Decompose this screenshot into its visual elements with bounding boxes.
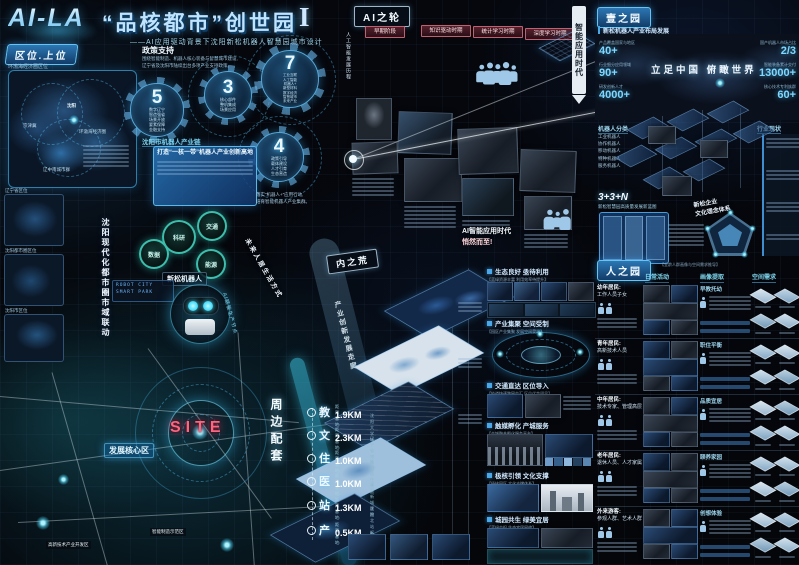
robot-class-list: 工业机器人 协作机器人 移动机器人 特种机器人 服务机器人 — [598, 133, 621, 169]
activity-photo — [671, 320, 698, 335]
robot-visor — [183, 297, 219, 315]
amenity-dist: 1.0KM — [335, 479, 362, 489]
persona-need: 早教托幼 — [700, 285, 722, 293]
space-iso-thumb — [750, 425, 777, 440]
analysis-photo — [568, 282, 594, 301]
micro-text-lines — [709, 462, 751, 480]
amenity-key: 医 — [319, 473, 330, 489]
activity-photo — [643, 397, 670, 415]
iso-caption — [779, 306, 795, 308]
space-iso-thumb — [774, 537, 799, 552]
map-node — [36, 516, 50, 530]
gear-items: 核心部件 整机集成 场景应用 — [220, 97, 236, 112]
ai-wheel-vertical-label: 人工智能发展历程 — [345, 32, 352, 124]
need-highlight — [700, 385, 750, 389]
analysis-thumb — [432, 534, 470, 560]
micro-text-lines — [83, 143, 129, 169]
timeline-origin-dot — [349, 155, 357, 163]
activity-photo-wide — [643, 415, 698, 432]
gear-items: 政策引导 载体建设 人才引育 生态营造 — [271, 156, 287, 176]
space-iso-thumb — [774, 400, 799, 415]
analysis-photo — [541, 282, 567, 301]
space-iso-thumb — [750, 537, 777, 552]
micro-text-lines — [597, 540, 637, 554]
core-zone-label: 发展核心区 — [104, 443, 154, 458]
persona-profile-icon — [700, 463, 708, 481]
analysis-photo — [514, 282, 540, 301]
surround-vertical-label: 周边配套 — [268, 398, 285, 508]
banner-line-1: ROBOT CITY — [116, 282, 170, 289]
timeline-photo — [462, 178, 514, 216]
micro-text-lines — [597, 316, 637, 330]
amenity-dot — [307, 501, 316, 510]
strip-tile — [560, 304, 594, 316]
pentagon-vertex — [712, 251, 719, 258]
need-highlight — [700, 433, 750, 437]
cube-guide-line — [740, 108, 741, 188]
iso-caption — [755, 474, 771, 476]
metro-circle-vertical-label: 沈阳现代化都市圈市域联动 — [100, 218, 111, 358]
iso-caption — [755, 500, 771, 502]
bohai-map: 沈阳 京津冀 环渤海经济圈 辽中南城市群 — [8, 70, 137, 188]
column-header-activities: 日常活动 — [645, 272, 669, 283]
ring-node — [576, 348, 584, 356]
micro-text-lines — [709, 518, 751, 536]
pentagon-vertex — [749, 225, 756, 232]
space-iso-thumb — [750, 481, 777, 496]
iso-caption — [779, 500, 795, 502]
activity-photo — [643, 509, 670, 527]
robot-eye-right — [203, 301, 213, 311]
amenity-dot — [307, 526, 316, 535]
analysis-header-ecology: 生态良好 亟待利用 【蓝绿资源丰富 利用效率待提升】 — [487, 266, 593, 283]
iso-caption — [779, 332, 795, 334]
amenity-dist: 1.3KM — [335, 503, 362, 513]
iso-caption — [755, 556, 771, 558]
activity-photo-wide — [643, 471, 698, 488]
space-iso-thumb — [750, 344, 777, 359]
need-highlight — [700, 553, 750, 557]
map-tiny-label-1: 高新技术产业开发区 — [46, 541, 91, 549]
garden-people-caption: 【全龄人群画像与空间需求推导】 — [660, 262, 720, 268]
blueprint-panel — [599, 212, 669, 264]
down-arrow-icon — [572, 95, 586, 104]
strategy-title: 触媒孵化 产城服务 — [495, 423, 549, 430]
stat-value: 60+ — [752, 89, 796, 101]
cube-photo-chip — [662, 176, 692, 196]
micro-text-lines — [709, 294, 751, 312]
amenity-key: 站 — [319, 497, 330, 513]
amenity-dist: 1.0KM — [335, 456, 362, 466]
industry-status-box — [762, 198, 799, 230]
blueprint-column — [603, 216, 622, 260]
persona-row: 外来游客: 参观人群、艺术人群 创想体验 — [595, 507, 799, 561]
landmark-spire — [550, 491, 556, 511]
policy-note-2: 培育智能机器人产业集群。 — [256, 199, 310, 205]
micro-text-lines — [458, 300, 482, 314]
persona-group: 青年居民: — [597, 339, 621, 347]
ring-diagram — [492, 332, 588, 376]
banner-line-2: SMART PARK — [116, 289, 170, 296]
need-highlight — [700, 545, 750, 549]
robot-eye-left — [188, 301, 198, 311]
poster-title: “品核都市”创世园 — [102, 7, 297, 37]
square-bullet-icon — [487, 383, 492, 388]
logo: AI-LA — [8, 4, 85, 33]
ring-core — [521, 346, 561, 364]
micro-text-lines — [709, 406, 751, 424]
blueprint-column — [625, 216, 644, 260]
section-title-ai-wheel: AI之轮 — [354, 6, 410, 27]
gear-3: 3 核心部件 整机集成 场景应用 — [198, 65, 258, 125]
amenity-dot — [307, 408, 316, 417]
amenity-dot — [307, 477, 316, 486]
timeline-portrait-photo — [356, 98, 392, 140]
industry-status-box — [762, 134, 799, 166]
micro-text-lines — [563, 394, 591, 412]
map-label-liaozhongnan: 辽中南城市群 — [43, 167, 70, 173]
industry-status-box — [762, 166, 799, 198]
gear-items: 数字辽宁 智造强省 场景开放 要素保障 金融支持 — [149, 107, 165, 132]
space-iso-thumb — [750, 400, 777, 415]
need-highlight — [700, 441, 750, 445]
strategy-title: 城园共生 绿美宜居 — [495, 517, 549, 524]
iso-caption — [755, 388, 771, 390]
space-iso-thumb — [774, 481, 799, 496]
strip-tile — [525, 304, 559, 316]
persona-sub: 工作人员子女 — [597, 291, 627, 298]
activity-photo — [643, 432, 670, 447]
ring-node — [536, 330, 544, 338]
analysis-photo — [525, 394, 561, 418]
analysis-thumb — [348, 534, 386, 560]
micro-text-lines — [668, 222, 704, 248]
strategy-title: 极核引领 文化支撑 — [495, 473, 549, 480]
activity-photo — [671, 509, 698, 527]
iso-caption — [779, 444, 795, 446]
persona-need: 品质宜居 — [700, 397, 722, 405]
bohai-map-caption: 环渤海经济圈区位 — [8, 63, 48, 70]
activity-photo — [671, 488, 698, 503]
space-iso-thumb — [774, 288, 799, 303]
micro-text-lines — [709, 350, 751, 368]
activity-photo — [643, 341, 670, 359]
need-highlight — [700, 489, 750, 493]
section-title-location: 区位.上位 — [5, 44, 79, 65]
era-vertical-banner: 智能应用时代 — [572, 6, 586, 94]
activity-photo — [671, 453, 698, 471]
shenyang-node — [69, 115, 79, 125]
persona-sub: 参观人群、艺术人群 — [597, 515, 642, 522]
activity-photo — [671, 285, 698, 303]
strip-tile — [489, 304, 523, 316]
persona-profile-icon — [700, 351, 708, 369]
amenity-key: 文 — [319, 427, 330, 443]
space-iso-thumb — [750, 456, 777, 471]
pentagon-vertex — [741, 251, 748, 258]
landmark-photo — [541, 484, 593, 512]
activity-photo-wide — [643, 303, 698, 320]
gear-number: 4 — [274, 137, 285, 156]
iso-caption — [779, 388, 795, 390]
pentagon-vertex — [704, 225, 711, 232]
micro-text-lines — [157, 161, 253, 175]
iso-caption — [755, 530, 771, 532]
landmark-spire — [578, 493, 584, 511]
robot-body — [185, 319, 215, 335]
square-bullet-icon — [487, 321, 492, 326]
stat-value: 4000+ — [599, 89, 630, 101]
legend-cell — [554, 458, 562, 466]
timeline-photo — [404, 158, 462, 202]
industry-panel: 打造“一核一带”机器人产业创新高地 — [153, 146, 257, 206]
legend-cell — [564, 458, 572, 466]
legend-cell — [545, 458, 553, 466]
persona-group: 中年居民: — [597, 395, 621, 403]
china-node — [715, 78, 725, 88]
gear-number: 5 — [152, 88, 163, 107]
activity-photo — [643, 285, 670, 303]
era-text-2: 悄然而至! — [462, 237, 492, 247]
analysis-title: 产业集聚 空间受制 — [495, 321, 549, 328]
activity-photo — [671, 432, 698, 447]
activity-photo-wide — [643, 359, 698, 376]
skyline-buildings — [488, 447, 542, 465]
strategy-photo — [541, 528, 593, 548]
stat-value: 2/3 — [752, 45, 796, 57]
need-highlight — [700, 497, 750, 501]
iso-caption — [755, 306, 771, 308]
strategy-plan-thumb — [487, 528, 539, 548]
iso-caption — [779, 474, 795, 476]
people-silhouettes — [546, 212, 570, 230]
legend-cell — [583, 458, 591, 466]
people-silhouettes — [478, 66, 518, 84]
iso-caption — [755, 332, 771, 334]
analysis-photo — [487, 394, 523, 418]
poster-canvas: AI-LA “品核都市”创世园 I ——AI应用驱动背景下沈阳新松机器人智慧园城… — [0, 0, 799, 565]
space-iso-thumb — [774, 344, 799, 359]
amenity-dist: 2.3KM — [335, 433, 362, 443]
space-iso-thumb — [774, 512, 799, 527]
stat-value: 13000+ — [752, 67, 796, 79]
persona-row: 幼年居民: 工作人员子女 早教托幼 — [595, 283, 799, 337]
timeline-stage-2: 知识驱动时期 — [421, 25, 471, 37]
need-highlight — [700, 329, 750, 333]
pentagon-vertex — [727, 209, 734, 216]
activity-photo — [671, 376, 698, 391]
iso-caption — [779, 556, 795, 558]
space-iso-thumb — [774, 425, 799, 440]
timeline-stage-1: 早期阶段 — [365, 26, 405, 38]
space-iso-thumb — [750, 313, 777, 328]
space-iso-thumb — [774, 456, 799, 471]
timeline-stage-3: 统计学习时期 — [473, 26, 523, 38]
persona-profile-icon — [700, 295, 708, 313]
culture-pentagon-chart — [706, 212, 754, 256]
space-iso-thumb — [750, 369, 777, 384]
persona-row: 青年居民: 高新技术人员 职住平衡 — [595, 339, 799, 393]
map-node — [58, 474, 69, 485]
gear-number: 3 — [223, 78, 234, 97]
panel-number: I — [299, 2, 310, 33]
activity-photo — [643, 453, 670, 471]
legend-cell — [573, 458, 581, 466]
formula-text: 3+3+N — [598, 192, 628, 203]
era-text-1: AI智能应用时代 — [462, 226, 511, 236]
analysis-title: 生态良好 亟待利用 — [495, 269, 549, 276]
section-title-garden-one: 壹之园 — [597, 7, 651, 28]
formula-note: 新松智慧园高质量发展新蓝图 — [598, 204, 657, 210]
micro-text-lines — [458, 412, 482, 426]
policy-title: 政策支持 — [142, 45, 174, 56]
persona-sub: 技术专家、管理高层 — [597, 403, 642, 410]
era-banner-text: 智能应用时代 — [574, 23, 585, 77]
industry-panel-title: 打造“一核一带”机器人产业创新高地 — [157, 150, 253, 158]
activity-photo — [643, 376, 670, 391]
map-label-bohai-circle: 环渤海经济圈 — [79, 129, 106, 135]
need-highlight — [700, 321, 750, 325]
robot-banner: ROBOT CITY SMART PARK — [112, 280, 174, 302]
analysis-title: 交通直达 区位导入 — [495, 383, 549, 390]
iso-caption — [779, 418, 795, 420]
space-iso-thumb — [750, 288, 777, 303]
persona-need: 职住平衡 — [700, 341, 722, 349]
analysis-thumb — [390, 534, 428, 560]
persona-row: 老年居民: 退休人员、人才家属 颐养家园 — [595, 451, 799, 505]
micro-text-lines — [458, 356, 482, 370]
space-iso-thumb — [774, 313, 799, 328]
square-bullet-icon — [487, 269, 492, 274]
gear-4: 4 政策引导 载体建设 人才引育 生态营造 — [248, 126, 310, 188]
micro-text-lines — [352, 176, 394, 198]
stat-value: 40+ — [599, 45, 618, 57]
timeline-photo — [457, 127, 519, 175]
badge-transport: 交通 — [197, 211, 227, 241]
map-label-jingjinji: 京津冀 — [23, 123, 37, 129]
amenity-dot — [307, 454, 316, 463]
square-bullet-icon — [487, 423, 492, 428]
square-bullet-icon — [487, 517, 492, 522]
map-tiny-label-2: 智能制造示范区 — [150, 528, 186, 536]
persona-need: 颐养家园 — [700, 453, 722, 461]
legend-grid — [545, 458, 591, 466]
space-iso-thumb — [750, 512, 777, 527]
activity-photo — [671, 341, 698, 359]
activity-photo-wide — [643, 527, 698, 544]
small-map-1 — [4, 194, 64, 246]
amenity-key: 教 — [319, 404, 330, 420]
strategy-map-thumb — [487, 484, 539, 512]
small-map-3 — [4, 314, 64, 362]
map-node — [220, 538, 234, 552]
section-title-garden-people: 人之园 — [597, 260, 651, 281]
persona-sub: 高新技术人员 — [597, 347, 627, 354]
site-label: SITE — [170, 419, 226, 437]
amenity-dot — [307, 431, 316, 440]
persona-sub: 退休人员、人才家属 — [597, 459, 642, 466]
analysis-photo — [487, 282, 513, 301]
strategy-map-thumb — [545, 434, 593, 458]
strategy-dark-strip — [487, 549, 593, 564]
column-header-space: 空间需求 — [752, 272, 776, 283]
stat-value: 90+ — [599, 67, 618, 79]
column-header-profile: 画像提取 — [700, 272, 724, 283]
industry-status-box — [762, 230, 799, 256]
cube-photo-chip — [700, 140, 728, 158]
micro-text-lines — [404, 204, 456, 230]
badge-research: 科研 — [162, 220, 196, 254]
micro-text-lines — [597, 484, 637, 498]
amenity-dist: 1.9KM — [335, 410, 362, 420]
space-iso-thumb — [774, 369, 799, 384]
iso-caption — [779, 530, 795, 532]
micro-text-lines — [524, 232, 568, 250]
micro-text-lines — [597, 372, 637, 386]
persona-need: 创想体验 — [700, 509, 722, 517]
amenity-key: 产 — [319, 522, 330, 538]
ring-node — [496, 350, 504, 358]
iso-caption — [755, 362, 771, 364]
blueprint-column — [646, 216, 665, 260]
persona-group: 外来游客: — [597, 507, 621, 515]
iso-caption — [755, 418, 771, 420]
gear-number: 7 — [285, 54, 296, 73]
persona-group: 幼年居民: — [597, 283, 621, 291]
persona-profile-icon — [700, 519, 708, 537]
skyline-photo — [487, 434, 543, 466]
gear-5: 5 数字辽宁 智造强省 场景开放 要素保障 金融支持 — [124, 77, 190, 143]
landmark-body — [562, 497, 572, 511]
analysis-strip — [487, 302, 596, 318]
gear-7: 7 工业互联 人工智能 机器人+ 新型材料 数字经济 智慧城市 未来产业 — [254, 43, 326, 115]
activity-photo — [671, 397, 698, 415]
gear-items: 工业互联 人工智能 机器人+ 新型材料 数字经济 智慧城市 未来产业 — [283, 73, 297, 104]
map-label-shenyang: 沈阳 — [67, 103, 76, 109]
persona-profile-icon — [700, 407, 708, 425]
activity-photo — [643, 488, 670, 503]
cube-photo-chip — [648, 126, 676, 144]
policy-note-1: 落实“机器人+”应用行动, — [256, 192, 303, 198]
square-bullet-icon — [487, 473, 492, 478]
amenity-connector-line — [312, 408, 313, 540]
persona-group: 老年居民: — [597, 451, 621, 459]
need-highlight — [700, 377, 750, 381]
iso-caption — [755, 444, 771, 446]
activity-photo — [643, 544, 670, 559]
timeline-photo — [519, 149, 576, 193]
activity-photo — [643, 320, 670, 335]
small-map-2 — [4, 254, 64, 306]
iso-caption — [779, 362, 795, 364]
amenity-key: 住 — [319, 450, 330, 466]
activity-photo — [671, 544, 698, 559]
persona-row: 中年居民: 技术专家、管理高层 品质宜居 — [595, 395, 799, 449]
micro-text-lines — [597, 428, 637, 442]
